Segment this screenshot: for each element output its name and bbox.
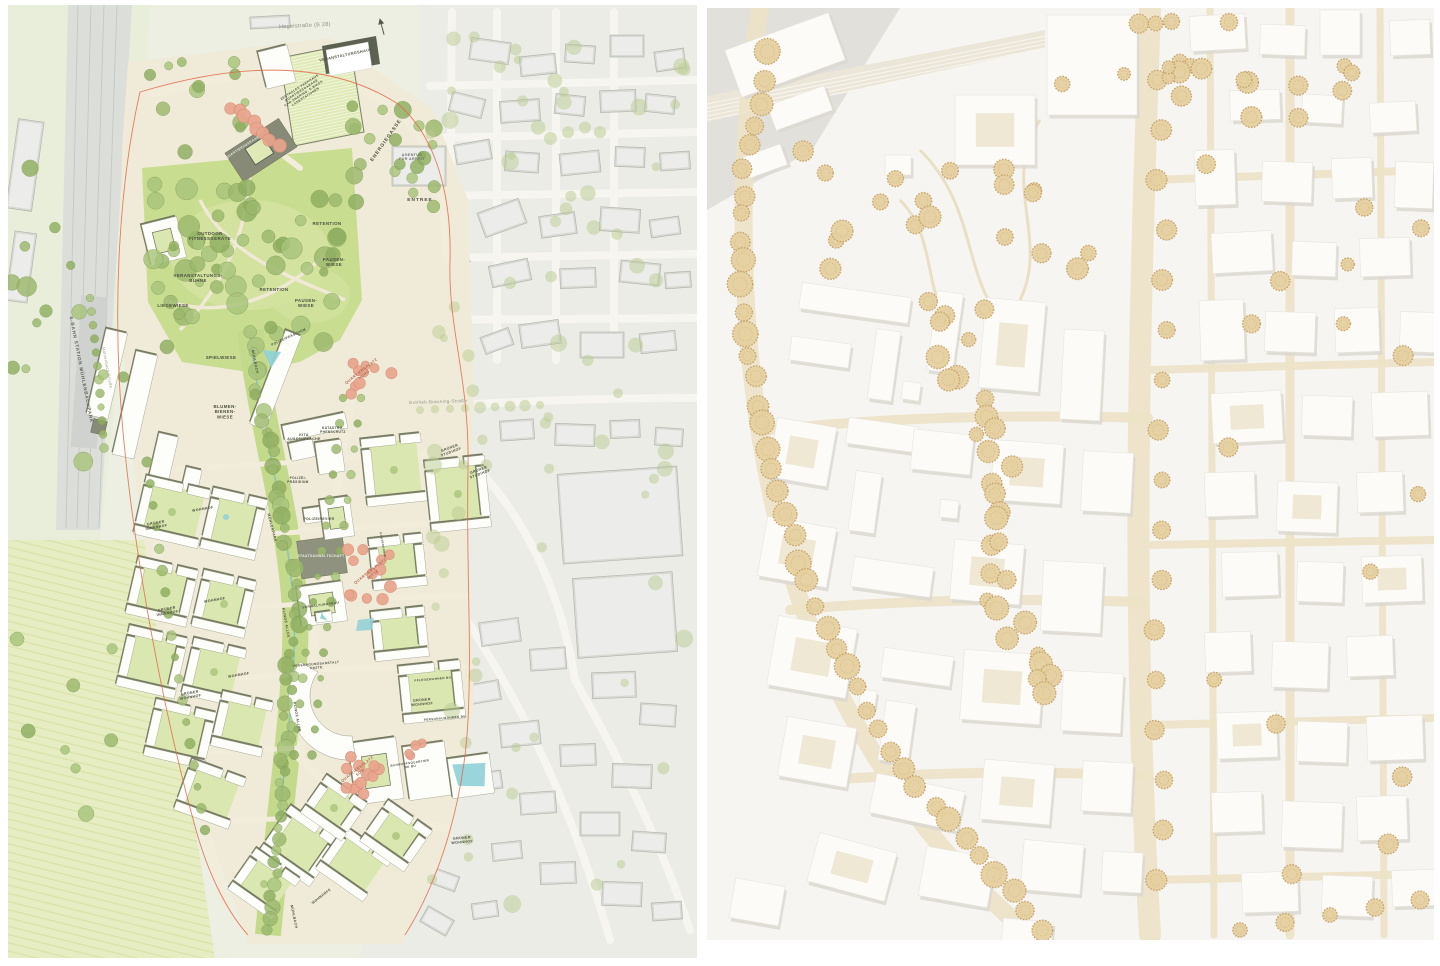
model-tree-icon bbox=[926, 345, 949, 368]
model-building bbox=[1366, 715, 1426, 765]
model-tree-icon bbox=[1158, 322, 1175, 339]
building bbox=[402, 531, 423, 544]
tree-icon bbox=[277, 696, 293, 712]
tree-icon bbox=[442, 112, 459, 129]
model-building bbox=[1394, 161, 1436, 212]
model-tree-icon bbox=[1146, 870, 1167, 891]
model-tree-icon bbox=[1393, 346, 1413, 366]
courtyard-block bbox=[369, 604, 429, 661]
two-panel-masterplan-figure: Hegelstraße (B 28)Gottlieb-Brauning-Stra… bbox=[0, 0, 1440, 966]
tree-icon bbox=[477, 434, 487, 444]
tree-icon bbox=[154, 544, 164, 554]
model-tree-icon bbox=[930, 312, 949, 331]
model-tree-icon bbox=[1207, 672, 1222, 687]
tree-icon bbox=[275, 778, 284, 787]
tree-icon bbox=[329, 228, 346, 245]
tree-icon bbox=[142, 457, 153, 468]
model-tree-icon bbox=[1241, 107, 1262, 128]
model-building bbox=[1259, 24, 1308, 59]
plan-label: STAATSANWALTSCHAFT bbox=[297, 554, 344, 558]
model-building bbox=[955, 95, 1038, 169]
model-photo-panel bbox=[707, 8, 1439, 956]
model-tree-icon bbox=[773, 502, 797, 526]
model-tree-icon bbox=[1233, 923, 1247, 937]
tree-icon bbox=[378, 105, 388, 115]
tree-icon bbox=[332, 444, 341, 453]
tree-icon bbox=[147, 177, 162, 192]
tree-icon bbox=[292, 579, 302, 589]
tree-icon bbox=[514, 55, 523, 64]
tree-icon bbox=[149, 501, 157, 509]
building bbox=[313, 437, 345, 474]
tree-icon bbox=[238, 179, 255, 196]
tree-icon bbox=[189, 760, 199, 770]
model-tree-icon bbox=[746, 366, 767, 387]
model-tree-icon bbox=[977, 441, 999, 463]
building bbox=[540, 861, 577, 884]
plaza-tree-icon bbox=[358, 544, 368, 554]
model-tree-icon bbox=[733, 205, 749, 221]
plaza-tree-icon bbox=[384, 581, 396, 593]
tree-icon bbox=[566, 40, 581, 55]
model-tree-icon bbox=[1067, 258, 1089, 280]
tree-icon bbox=[469, 31, 480, 42]
building bbox=[610, 35, 644, 57]
tree-icon bbox=[275, 811, 286, 822]
model-tree-icon bbox=[1267, 715, 1285, 733]
tree-icon bbox=[550, 335, 567, 352]
tree-icon bbox=[262, 230, 275, 243]
tree-icon bbox=[319, 268, 328, 277]
tree-icon bbox=[169, 241, 179, 251]
tree-icon bbox=[90, 335, 98, 343]
model-tree-icon bbox=[754, 38, 780, 64]
model-tree-icon bbox=[1344, 65, 1360, 81]
model-building bbox=[900, 381, 923, 405]
tree-icon bbox=[462, 349, 474, 361]
tree-icon bbox=[298, 674, 307, 683]
plan-label: SPIELWIESE bbox=[206, 355, 237, 360]
tree-icon bbox=[407, 173, 418, 184]
tree-icon bbox=[641, 491, 649, 499]
model-tree-icon bbox=[962, 333, 976, 347]
building bbox=[649, 216, 681, 238]
tree-icon bbox=[194, 783, 201, 790]
model-tree-icon bbox=[990, 533, 1007, 550]
building bbox=[446, 751, 495, 799]
tree-icon bbox=[565, 191, 576, 202]
tree-icon bbox=[425, 457, 442, 474]
model-tree-icon bbox=[1118, 68, 1131, 81]
tree-icon bbox=[278, 800, 288, 810]
building bbox=[555, 423, 596, 446]
tree-icon bbox=[469, 668, 483, 682]
tree-icon bbox=[506, 788, 518, 800]
tree-icon bbox=[318, 675, 324, 681]
building bbox=[529, 647, 566, 671]
model-tree-icon bbox=[761, 459, 781, 479]
tree-icon bbox=[562, 126, 574, 138]
tree-icon bbox=[344, 497, 351, 504]
model-building bbox=[1261, 161, 1315, 206]
tree-icon bbox=[544, 132, 557, 145]
tree-icon bbox=[144, 69, 156, 81]
tree-icon bbox=[346, 167, 363, 184]
tree-icon bbox=[98, 404, 105, 411]
plaza-tree-icon bbox=[344, 590, 354, 600]
model-tree-icon bbox=[739, 348, 756, 365]
tree-icon bbox=[474, 402, 486, 414]
model-tree-icon bbox=[1171, 86, 1191, 106]
tree-icon bbox=[263, 911, 278, 926]
building bbox=[491, 840, 523, 861]
model-tree-icon bbox=[1282, 865, 1301, 884]
tree-icon bbox=[649, 474, 659, 484]
building bbox=[580, 332, 624, 358]
courtyard-block bbox=[359, 431, 427, 507]
model-tree-icon bbox=[1002, 456, 1023, 477]
model-tree-icon bbox=[981, 564, 1000, 583]
tree-icon bbox=[237, 234, 249, 246]
model-building bbox=[1199, 299, 1248, 364]
model-tree-icon bbox=[834, 654, 859, 679]
tree-icon bbox=[266, 256, 285, 275]
tree-icon bbox=[254, 414, 268, 428]
tree-icon bbox=[280, 766, 290, 776]
tree-icon bbox=[174, 674, 183, 683]
model-tree-icon bbox=[1148, 420, 1168, 440]
model-building bbox=[910, 429, 977, 479]
plaza-tree-icon bbox=[341, 783, 352, 794]
tree-icon bbox=[348, 194, 364, 210]
tree-icon bbox=[273, 507, 291, 525]
building bbox=[615, 146, 646, 167]
model-tree-icon bbox=[820, 258, 841, 279]
tree-icon bbox=[545, 271, 557, 283]
tree-icon bbox=[504, 277, 516, 289]
model-tree-icon bbox=[1271, 271, 1290, 290]
plan-label: POLIZEIREVIER bbox=[303, 517, 334, 521]
tree-icon bbox=[100, 444, 109, 453]
tree-icon bbox=[510, 44, 522, 56]
model-building bbox=[1101, 851, 1146, 897]
tree-icon bbox=[629, 258, 645, 274]
building bbox=[610, 419, 641, 438]
model-building bbox=[1264, 311, 1318, 356]
plaza-tree-icon bbox=[349, 556, 359, 566]
model-tree-icon bbox=[1032, 244, 1051, 263]
tree-icon bbox=[587, 220, 601, 234]
model-building bbox=[1281, 801, 1345, 853]
model-tree-icon bbox=[1411, 891, 1429, 909]
building bbox=[560, 267, 597, 288]
model-tree-icon bbox=[1219, 438, 1238, 457]
tree-icon bbox=[160, 340, 174, 354]
tree-icon bbox=[178, 144, 193, 159]
tree-icon bbox=[594, 126, 606, 138]
tree-icon bbox=[595, 434, 610, 449]
model-tree-icon bbox=[740, 135, 760, 155]
tree-icon bbox=[286, 559, 304, 577]
tree-icon bbox=[287, 685, 297, 695]
tree-icon bbox=[93, 362, 101, 370]
plaza-tree-icon bbox=[346, 389, 357, 400]
model-tree-icon bbox=[919, 293, 937, 311]
tree-icon bbox=[670, 100, 680, 110]
model-building bbox=[1346, 635, 1396, 680]
tree-icon bbox=[428, 180, 440, 192]
tree-icon bbox=[364, 133, 375, 144]
tree-icon bbox=[550, 216, 561, 227]
city-street bbox=[430, 254, 697, 258]
model-building bbox=[1080, 451, 1136, 517]
model-tree-icon bbox=[1191, 58, 1212, 79]
tree-icon bbox=[466, 384, 479, 397]
model-tree-icon bbox=[1197, 155, 1215, 173]
model-tree-icon bbox=[997, 229, 1013, 245]
model-tree-icon bbox=[858, 702, 875, 719]
tree-icon bbox=[78, 806, 94, 822]
model-tree-icon bbox=[985, 596, 1009, 620]
tree-icon bbox=[49, 222, 60, 233]
tree-icon bbox=[6, 361, 20, 375]
model-tree-icon bbox=[994, 175, 1013, 194]
tree-icon bbox=[246, 200, 261, 215]
tree-icon bbox=[92, 349, 100, 357]
tree-icon bbox=[244, 325, 257, 338]
tree-icon bbox=[431, 405, 439, 413]
building bbox=[399, 431, 422, 444]
model-tree-icon bbox=[1410, 487, 1425, 502]
model-street bbox=[1152, 540, 1434, 545]
tree-icon bbox=[21, 724, 35, 738]
model-tree-icon bbox=[1153, 820, 1173, 840]
model-tree-icon bbox=[1413, 220, 1430, 237]
tree-icon bbox=[347, 101, 358, 112]
model-building bbox=[1296, 561, 1346, 606]
building bbox=[592, 671, 637, 699]
model-tree-icon bbox=[873, 194, 889, 210]
model-tree-icon bbox=[1336, 317, 1350, 331]
model-tree-icon bbox=[1289, 108, 1308, 127]
model-tree-icon bbox=[754, 71, 775, 92]
tree-icon bbox=[620, 679, 629, 688]
plan-label: KATASTRO-PHENSCHUTZ bbox=[320, 426, 346, 434]
model-tree-icon bbox=[756, 437, 780, 461]
model-tree-icon bbox=[1055, 76, 1070, 91]
tree-icon bbox=[66, 261, 75, 270]
plaza-tree-icon bbox=[405, 749, 414, 758]
tree-icon bbox=[10, 632, 24, 646]
model-tree-icon bbox=[1152, 570, 1171, 589]
tree-icon bbox=[537, 542, 547, 552]
model-building bbox=[1331, 157, 1375, 202]
tree-icon bbox=[503, 895, 521, 913]
tree-icon bbox=[40, 305, 53, 318]
model-tree-icon bbox=[849, 678, 866, 695]
building bbox=[631, 831, 666, 853]
plaza-tree-icon bbox=[369, 760, 380, 771]
tree-icon bbox=[426, 130, 436, 140]
tree-icon bbox=[268, 465, 278, 475]
building bbox=[499, 419, 534, 441]
model-tree-icon bbox=[735, 304, 752, 321]
model-building bbox=[1361, 555, 1425, 607]
tree-icon bbox=[657, 762, 669, 774]
model-tree-icon bbox=[1341, 258, 1354, 271]
model-building bbox=[1020, 839, 1087, 898]
tree-icon bbox=[347, 470, 356, 479]
tree-icon bbox=[144, 249, 164, 269]
model-tree-icon bbox=[1162, 61, 1175, 74]
tree-icon bbox=[319, 648, 327, 656]
model-building bbox=[1047, 15, 1140, 119]
tree-icon bbox=[272, 832, 286, 846]
model-tree-icon bbox=[996, 627, 1018, 649]
tree-icon bbox=[147, 192, 164, 209]
tree-icon bbox=[580, 185, 596, 201]
model-tree-icon bbox=[893, 758, 914, 779]
tree-icon bbox=[544, 464, 554, 474]
tree-icon bbox=[648, 575, 663, 590]
tree-icon bbox=[432, 325, 446, 339]
building bbox=[580, 812, 620, 836]
model-building bbox=[979, 759, 1057, 829]
plan-label: ENTREE bbox=[407, 197, 432, 203]
tree-icon bbox=[268, 445, 279, 456]
tree-icon bbox=[86, 294, 93, 301]
building bbox=[479, 617, 522, 646]
model-building bbox=[1059, 329, 1106, 425]
building bbox=[602, 881, 643, 906]
tree-icon bbox=[560, 203, 573, 216]
tree-icon bbox=[354, 420, 362, 428]
plaza-tree-icon bbox=[358, 789, 369, 800]
building bbox=[401, 739, 452, 800]
city-street bbox=[432, 318, 697, 320]
tree-icon bbox=[295, 215, 306, 226]
tree-icon bbox=[281, 238, 302, 259]
model-tree-icon bbox=[750, 410, 775, 435]
building bbox=[519, 791, 556, 815]
model-tree-icon bbox=[1392, 767, 1411, 786]
tree-icon bbox=[431, 602, 439, 610]
model-tree-icon bbox=[881, 742, 900, 761]
model-tree-icon bbox=[1157, 220, 1177, 240]
tree-icon bbox=[557, 95, 572, 110]
model-building bbox=[1060, 670, 1126, 737]
tree-icon bbox=[157, 565, 168, 576]
tree-icon bbox=[613, 388, 623, 398]
model-tree-icon bbox=[746, 117, 764, 135]
plaza-tree-icon bbox=[345, 751, 356, 762]
model-tree-icon bbox=[1333, 81, 1351, 99]
park-meadow bbox=[270, 267, 350, 323]
model-tree-icon bbox=[1289, 76, 1308, 95]
building bbox=[600, 89, 637, 112]
model-tree-icon bbox=[985, 506, 1008, 529]
model-building bbox=[1204, 631, 1254, 676]
tree-icon bbox=[196, 803, 206, 813]
tree-icon bbox=[265, 321, 278, 334]
tree-icon bbox=[192, 80, 204, 92]
model-tree-icon bbox=[1151, 120, 1171, 140]
model-tree-icon bbox=[750, 93, 772, 115]
tree-icon bbox=[357, 394, 365, 402]
model-tree-icon bbox=[731, 248, 755, 272]
tree-icon bbox=[329, 471, 337, 479]
building bbox=[314, 609, 333, 623]
plan-label: PAUSEN-WIESE bbox=[323, 257, 345, 267]
tree-icon bbox=[229, 69, 240, 80]
tree-icon bbox=[267, 878, 281, 892]
model-tree-icon bbox=[1276, 914, 1294, 932]
building bbox=[639, 703, 676, 727]
tree-icon bbox=[307, 750, 316, 759]
plaza-tree-icon bbox=[411, 741, 421, 751]
building bbox=[557, 466, 683, 564]
building bbox=[612, 763, 653, 788]
building bbox=[437, 658, 460, 671]
model-tree-icon bbox=[904, 776, 926, 798]
tree-icon bbox=[547, 73, 562, 88]
model-building bbox=[939, 499, 962, 523]
masterplan-panel: Hegelstraße (B 28)Gottlieb-Brauning-Stra… bbox=[4, 5, 697, 958]
tree-icon bbox=[314, 573, 320, 579]
tree-icon bbox=[291, 616, 308, 633]
tree-icon bbox=[272, 846, 282, 856]
tree-icon bbox=[275, 786, 290, 801]
tree-icon bbox=[274, 824, 282, 832]
model-building bbox=[1389, 19, 1433, 59]
model-tree-icon bbox=[727, 271, 752, 296]
tree-icon bbox=[98, 417, 106, 425]
tree-icon bbox=[183, 718, 190, 725]
tree-icon bbox=[74, 452, 93, 471]
tree-icon bbox=[494, 60, 506, 72]
tree-icon bbox=[99, 430, 107, 438]
tree-icon bbox=[302, 649, 310, 657]
building bbox=[651, 901, 682, 921]
model-tree-icon bbox=[1032, 920, 1053, 941]
tree-icon bbox=[519, 400, 530, 411]
tree-icon bbox=[447, 86, 456, 95]
model-building bbox=[1211, 230, 1276, 277]
model-tree-icon bbox=[1220, 13, 1237, 30]
model-building bbox=[1369, 101, 1419, 137]
tree-icon bbox=[171, 654, 178, 661]
model-building bbox=[1371, 391, 1431, 441]
model-tree-icon bbox=[1323, 908, 1337, 922]
model-tree-icon bbox=[1144, 620, 1164, 640]
tree-icon bbox=[446, 405, 454, 413]
model-tree-icon bbox=[807, 598, 824, 615]
tree-icon bbox=[351, 446, 358, 453]
tree-icon bbox=[675, 630, 693, 648]
model-tree-icon bbox=[981, 862, 1007, 888]
model-tree-icon bbox=[735, 186, 755, 206]
tree-icon bbox=[449, 301, 460, 312]
plaza-tree-icon bbox=[355, 777, 366, 788]
model-building bbox=[1301, 395, 1355, 440]
model-tree-icon bbox=[766, 480, 788, 502]
model-tree-icon bbox=[1148, 16, 1163, 31]
tree-icon bbox=[529, 733, 539, 743]
building bbox=[664, 271, 691, 289]
model-building bbox=[728, 878, 787, 930]
model-tree-icon bbox=[733, 321, 758, 346]
plan-label: PAUSEN-WIESE bbox=[295, 298, 317, 308]
